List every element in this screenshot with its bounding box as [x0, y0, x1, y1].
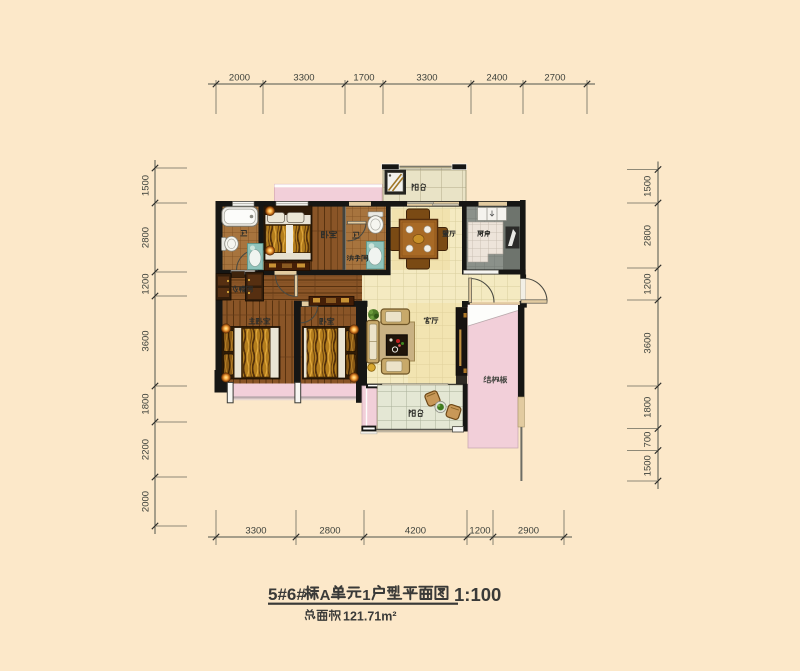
svg-text:1200: 1200: [643, 273, 654, 294]
svg-text:1800: 1800: [141, 393, 152, 414]
svg-text:2200: 2200: [141, 439, 152, 460]
svg-text:2000: 2000: [141, 491, 152, 512]
svg-text:5#6#: 5#6#: [268, 585, 306, 604]
svg-text:1500: 1500: [141, 175, 152, 196]
svg-text:1:100: 1:100: [454, 584, 501, 605]
svg-text:2000: 2000: [229, 73, 250, 84]
svg-text:3600: 3600: [141, 330, 152, 351]
svg-text:3300: 3300: [245, 526, 266, 537]
svg-text:1200: 1200: [469, 526, 490, 537]
svg-text:1700: 1700: [353, 73, 374, 84]
svg-text:2700: 2700: [544, 73, 565, 84]
svg-text:3300: 3300: [416, 73, 437, 84]
svg-text:A: A: [320, 587, 331, 604]
svg-text:700: 700: [643, 432, 654, 448]
svg-text:2800: 2800: [319, 526, 340, 537]
svg-text:1800: 1800: [643, 397, 654, 418]
svg-text:1200: 1200: [141, 273, 152, 294]
svg-text:121.71m²: 121.71m²: [343, 610, 397, 624]
svg-text:3300: 3300: [293, 73, 314, 84]
svg-text:2800: 2800: [643, 225, 654, 246]
svg-text:2800: 2800: [141, 227, 152, 248]
svg-text:2900: 2900: [518, 526, 539, 537]
svg-text:3600: 3600: [643, 332, 654, 353]
svg-text:1: 1: [362, 587, 370, 604]
svg-text:4200: 4200: [405, 526, 426, 537]
svg-text:1500: 1500: [643, 176, 654, 197]
svg-text:1500: 1500: [643, 455, 654, 476]
svg-text:2400: 2400: [486, 73, 507, 84]
